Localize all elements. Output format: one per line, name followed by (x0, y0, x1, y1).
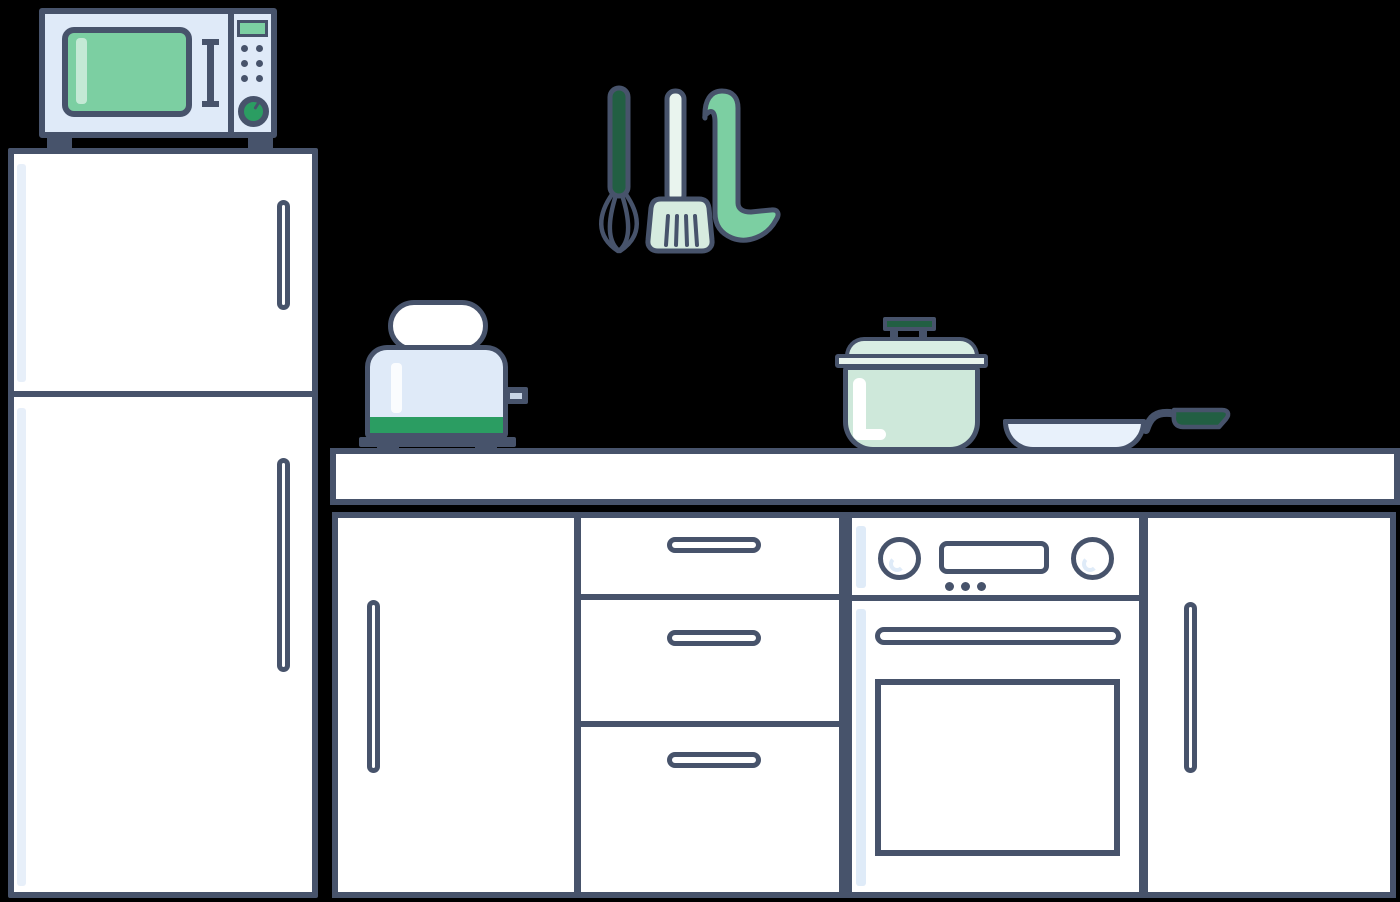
drawer-handle (667, 630, 761, 646)
oven-knob-glare (1082, 556, 1098, 572)
right-cabinet-door-handle (1184, 602, 1197, 773)
oven-display (939, 541, 1049, 574)
microwave-button-dot (256, 60, 263, 67)
microwave-button-dot (241, 45, 248, 52)
cabinet-divider (839, 512, 852, 898)
oven-knob-glare (889, 556, 905, 572)
oven-door-glare (856, 609, 866, 886)
whisk-handle (610, 88, 628, 196)
oven-knob-right (1071, 537, 1114, 580)
cabinet-divider (1139, 512, 1148, 898)
drawer-handle (667, 537, 761, 553)
left-cabinet-door-handle (367, 600, 380, 773)
kitchen-scene (0, 0, 1400, 902)
spatula-slot (686, 216, 687, 245)
microwave-door-handle-cap-top (202, 39, 219, 45)
spatula-handle (667, 91, 684, 203)
spatula-slot (695, 216, 697, 245)
oven-window (875, 679, 1120, 856)
oven-indicator-dot (961, 582, 970, 591)
toaster-lever-knob (510, 393, 522, 399)
toaster-band (370, 417, 503, 433)
oven-indicator-dot (945, 582, 954, 591)
fridge-door-glare (17, 408, 26, 886)
microwave-button-dot (256, 45, 263, 52)
drawer-divider (581, 594, 839, 600)
hanging-utensils (585, 85, 795, 260)
oven-panel-divider (852, 595, 1139, 601)
freezer-door-glare (17, 164, 26, 382)
refrigerator-door-divider (10, 391, 316, 397)
microwave-panel-divider (228, 8, 234, 138)
cabinet-divider (574, 512, 581, 898)
refrigerator (8, 148, 318, 898)
drawer-divider (581, 721, 839, 727)
frying-pan-handle (1130, 400, 1240, 445)
microwave-knob (238, 96, 269, 127)
toaster (365, 345, 508, 438)
spatula-slot (666, 216, 668, 245)
pot-lid-knob (883, 317, 936, 331)
microwave-button-dot (241, 75, 248, 82)
whisk-wires (620, 195, 628, 250)
oven-indicator-dot (977, 582, 986, 591)
freezer-door-handle (277, 200, 290, 310)
oven-panel-glare (856, 526, 866, 588)
whisk (601, 88, 637, 251)
whisk-wires (610, 195, 618, 250)
toaster-glare (391, 363, 402, 413)
microwave-door-handle (207, 44, 214, 102)
ladle (705, 91, 778, 240)
microwave-button-dot (241, 60, 248, 67)
oven-knob-left (878, 537, 921, 580)
spatula-head (648, 199, 712, 251)
microwave-door-handle-cap-bottom (202, 101, 219, 107)
drawer-handle (667, 752, 761, 768)
countertop (330, 448, 1400, 505)
microwave-button-dot (256, 75, 263, 82)
spatula-slot (676, 216, 677, 245)
oven-door-handle (875, 627, 1121, 645)
fridge-door-handle (277, 458, 290, 672)
pot-glare-l-foot (853, 429, 886, 440)
pan-handle-grip (1174, 410, 1228, 427)
microwave-display (237, 20, 268, 37)
microwave-window-glare (76, 38, 87, 104)
